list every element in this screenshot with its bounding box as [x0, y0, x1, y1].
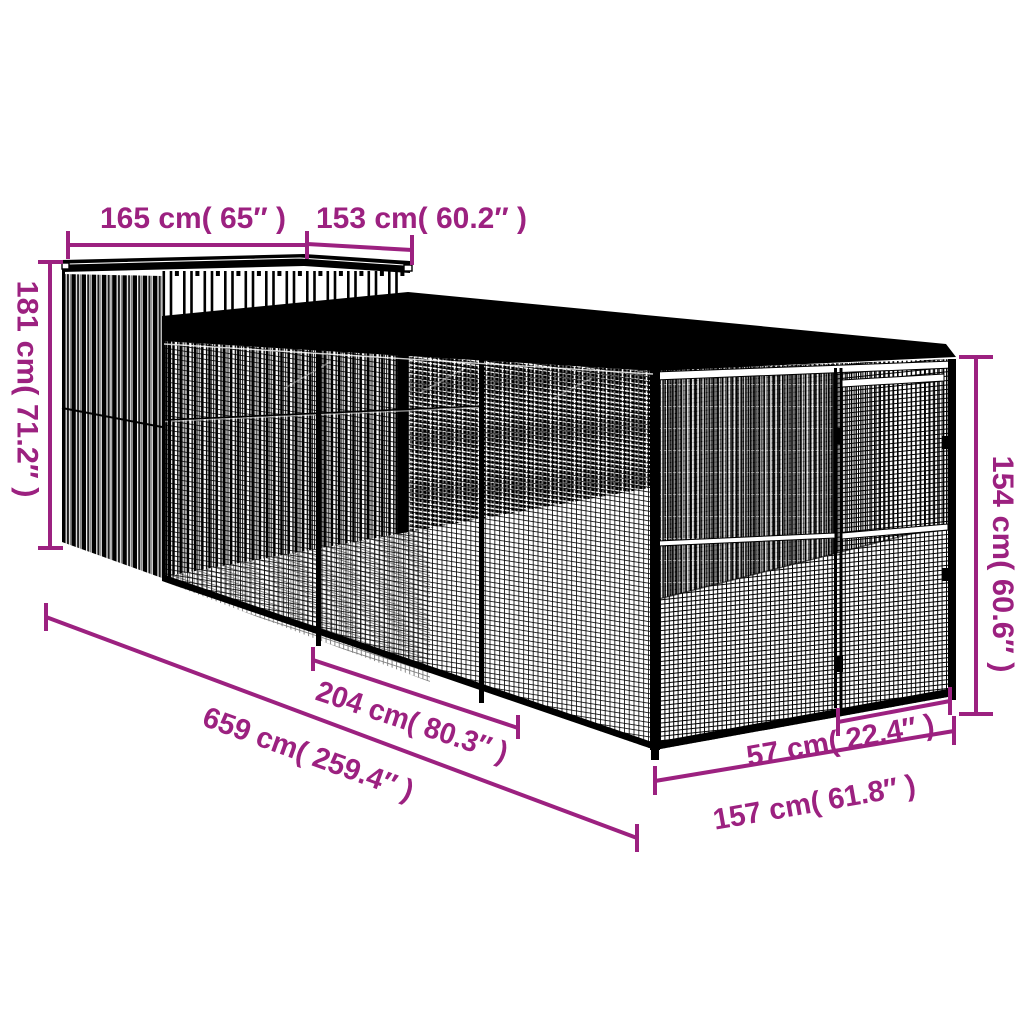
- svg-text:153 cm( 60.2″ ): 153 cm( 60.2″ ): [316, 202, 527, 235]
- svg-text:165 cm( 65″ ): 165 cm( 65″ ): [100, 202, 286, 235]
- svg-text:154 cm( 60.6″ ): 154 cm( 60.6″ ): [986, 456, 1019, 673]
- svg-text:181 cm( 71.2″ ): 181 cm( 71.2″ ): [11, 281, 44, 498]
